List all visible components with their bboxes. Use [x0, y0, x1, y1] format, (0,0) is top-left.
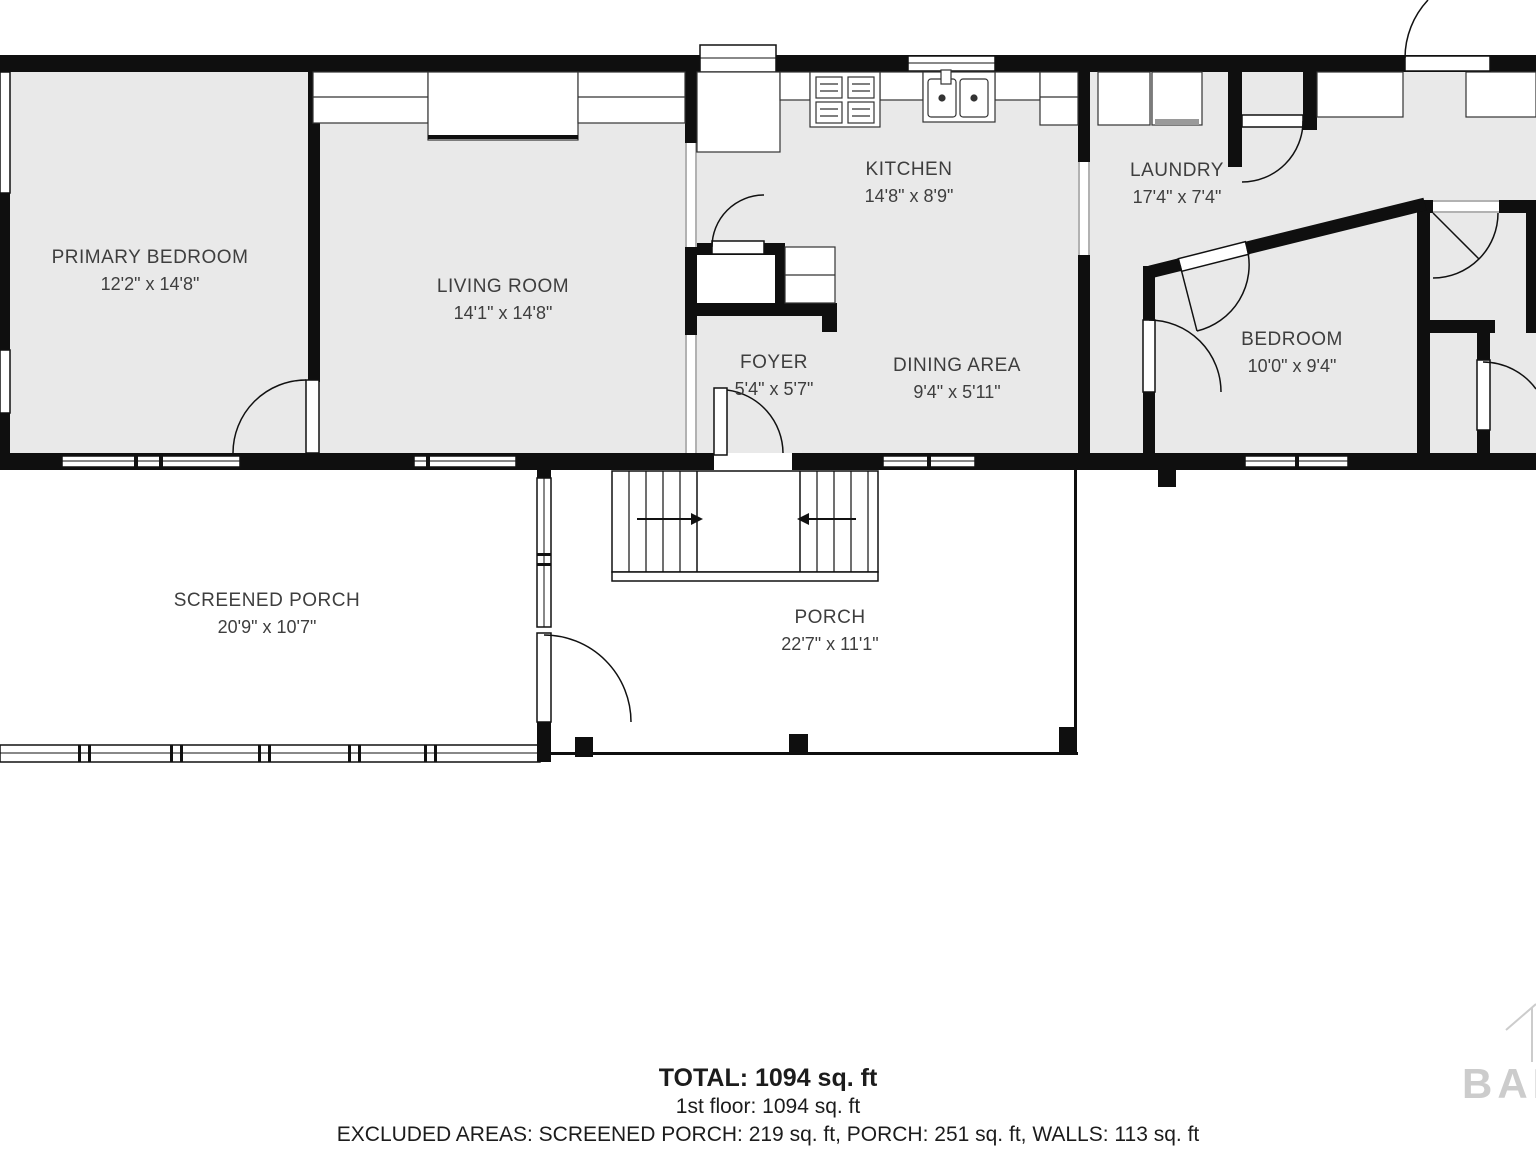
entry-door [1405, 0, 1490, 71]
dining-window [883, 456, 975, 467]
cabinet [1317, 72, 1403, 117]
stairs [612, 471, 878, 581]
bedroom-window [1245, 456, 1348, 467]
counter [1040, 72, 1078, 125]
laundry-fixtures [1098, 72, 1536, 125]
wall-stub [1158, 470, 1176, 487]
counter [995, 72, 1040, 100]
cabinet [1466, 72, 1536, 117]
porch-post [789, 734, 808, 754]
excluded-areas: EXCLUDED AREAS: SCREENED PORCH: 219 sq. … [0, 1121, 1536, 1149]
refrigerator [697, 72, 780, 152]
primary-bedroom-window [62, 456, 240, 467]
total-area: TOTAL: 1094 sq. ft [0, 1063, 1536, 1093]
dryer-icon [1152, 72, 1202, 125]
porch-post [1059, 727, 1077, 755]
area-summary: TOTAL: 1094 sq. ft 1st floor: 1094 sq. f… [0, 1063, 1536, 1149]
counter [780, 72, 810, 100]
washer-icon [1098, 72, 1150, 125]
foyer-closet [697, 247, 835, 303]
first-floor-area: 1st floor: 1094 sq. ft [0, 1093, 1536, 1121]
porch-post [575, 737, 593, 757]
watermark-logo-icon [1506, 1004, 1536, 1062]
watermark-text: BALL [1462, 1060, 1536, 1108]
floor-plan-drawing [0, 0, 1536, 1152]
counter [880, 72, 923, 100]
floor-plan: PRIMARY BEDROOM 12'2" x 14'8" LIVING ROO… [0, 0, 1536, 1152]
living-room-window [414, 456, 516, 467]
sink-icon [923, 70, 995, 122]
screened-porch-structure [0, 470, 631, 762]
stove-icon [810, 72, 880, 127]
